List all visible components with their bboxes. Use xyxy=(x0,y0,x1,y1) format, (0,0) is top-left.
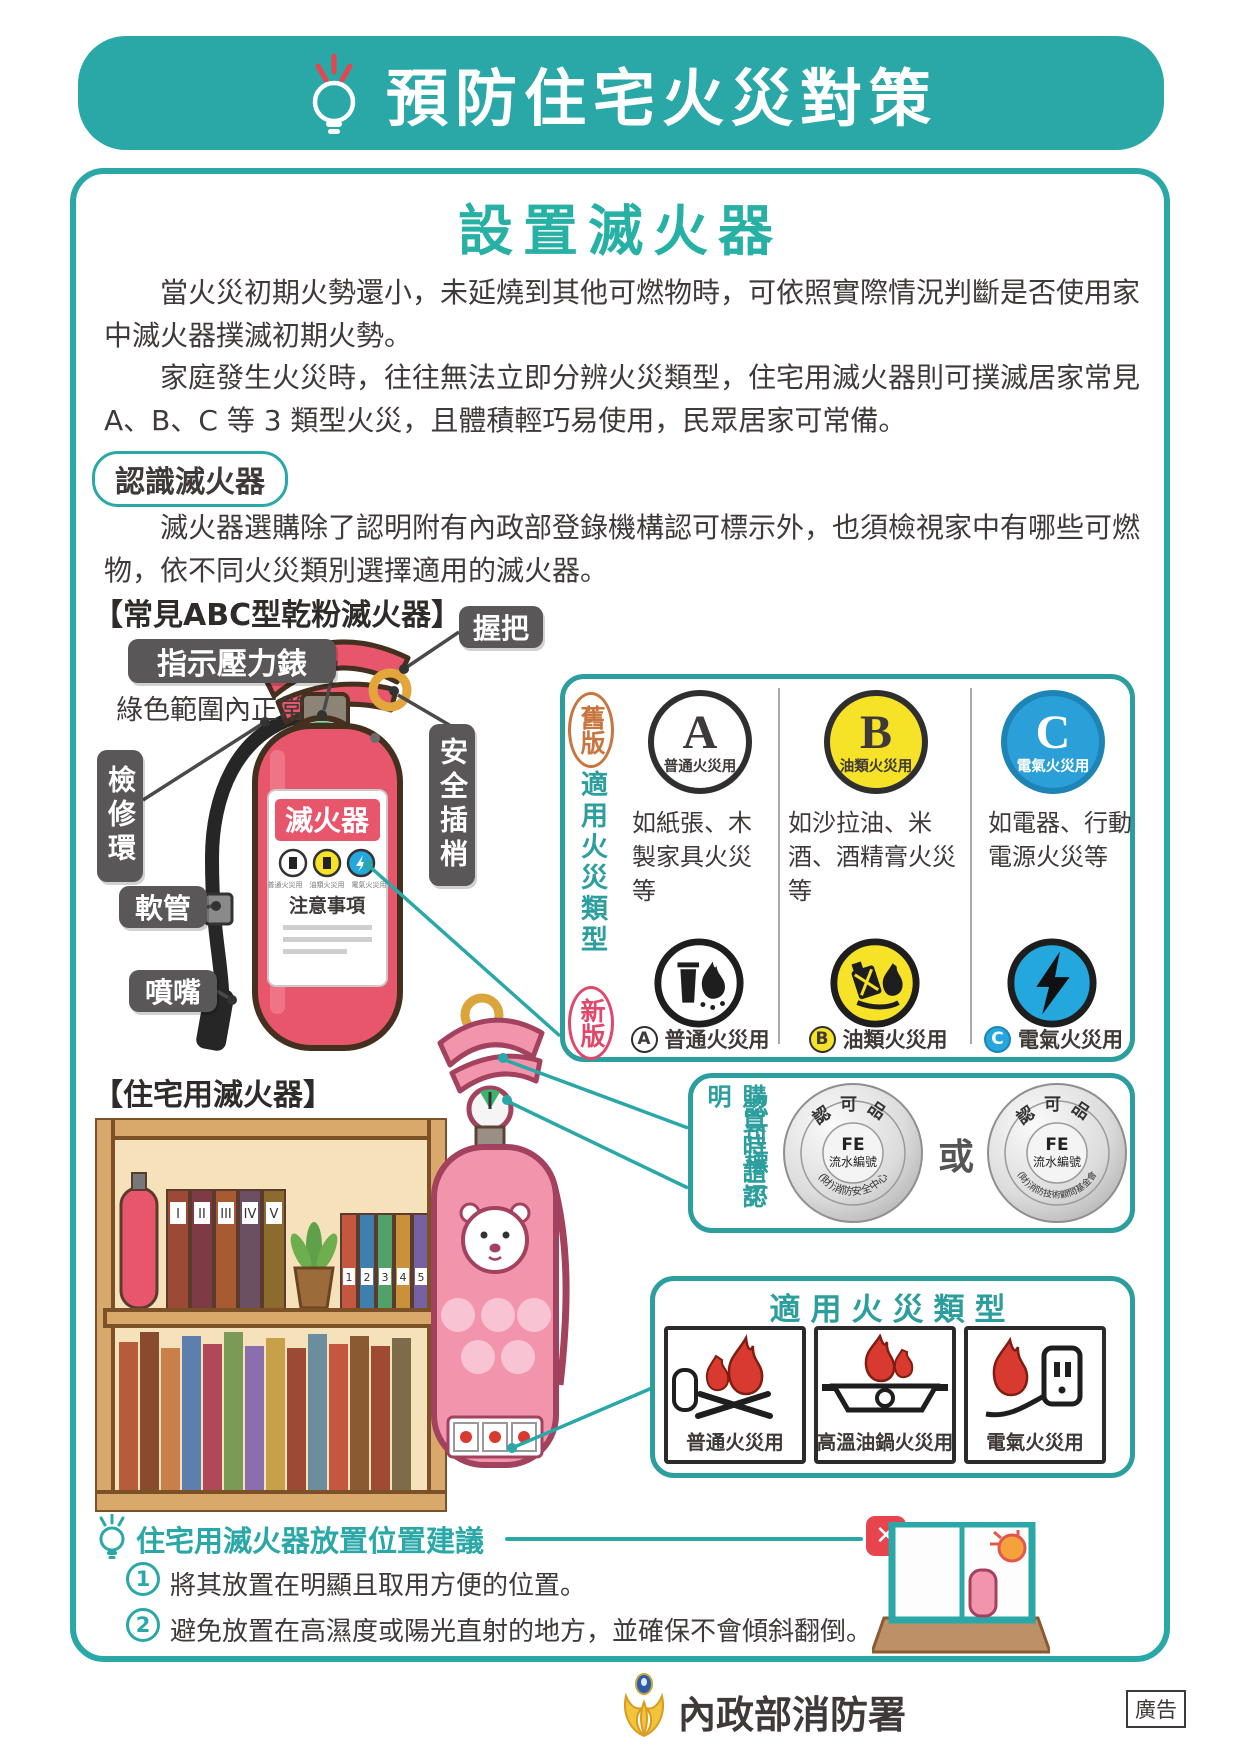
svg-text:1: 1 xyxy=(346,1271,353,1284)
svg-text:4: 4 xyxy=(400,1271,407,1284)
class-b-label: 油類火災用 xyxy=(840,760,913,775)
gauge-note: 綠色範圍內正常 xyxy=(116,688,305,727)
svg-text:2: 2 xyxy=(364,1271,371,1284)
or-text: 或 xyxy=(938,1128,974,1180)
mini-class-caption: 普通火災用 油類火災用 電氣火災用 xyxy=(268,880,387,889)
svg-text:IV: IV xyxy=(244,1207,257,1222)
placement-item-1-number: 1 xyxy=(126,1562,160,1596)
class-a-caption-circle: A xyxy=(631,1026,658,1053)
applicable-box-electrical: 電氣火災用 xyxy=(964,1326,1106,1464)
applicable-caption-ordinary: 普通火災用 xyxy=(686,1426,784,1455)
banner: 預防住宅火災對策 xyxy=(78,36,1164,150)
label-pressure-gauge: 指示壓力錶 xyxy=(128,639,336,683)
class-c-desc: 如電器、行動電源火災等 xyxy=(988,806,1133,874)
class-c-new-icon xyxy=(1005,936,1099,1030)
outlet-fire-icon xyxy=(968,1334,1102,1426)
label-hose: 軟管 xyxy=(119,886,207,928)
class-a-label: 普通火災用 xyxy=(664,760,737,775)
svg-text:II: II xyxy=(198,1207,206,1222)
home-extinguisher-illustration xyxy=(420,985,575,1520)
intro-paragraph-3: 滅火器選購除了認明附有內政部登錄機構認可標示外，也須檢視家中有哪些可燃物，依不同… xyxy=(104,507,1144,592)
placement-title: 住宅用滅火器放置位置建議 xyxy=(136,1518,484,1560)
applicable-type-side-label: 適用火災類型 xyxy=(572,770,611,975)
campfire-icon xyxy=(668,1334,802,1426)
svg-text:V: V xyxy=(270,1207,279,1222)
seal1-code-label: 流水編號 xyxy=(829,1154,877,1169)
ad-label: 廣告 xyxy=(1126,1690,1186,1728)
seal2-code-label: 流水編號 xyxy=(1033,1154,1081,1169)
intro-paragraph-2: 家庭發生火災時，往往無法立即分辨火災類型，住宅用滅火器則可撲滅居家常見 A、B、… xyxy=(104,357,1144,442)
know-extinguisher-badge: 認識滅火器 xyxy=(92,451,288,507)
class-a-caption: A 普通火災用 xyxy=(620,1024,780,1054)
label-safety-pin: 安全插梢 xyxy=(429,724,475,886)
class-a-desc: 如紙張、木製家具火災等 xyxy=(632,806,774,908)
home-extinguisher-title: 【住宅用滅火器】 xyxy=(93,1070,333,1114)
poster: 預防住宅火災對策 設置滅火器 當火災初期火勢還小，未延燒到其他可燃物時，可依照實… xyxy=(0,0,1241,1754)
placement-item-2-number: 2 xyxy=(126,1608,160,1642)
bear-face xyxy=(463,1208,527,1272)
class-b-caption-circle: B xyxy=(809,1026,836,1053)
applicable-box-ordinary: 普通火災用 xyxy=(664,1326,806,1464)
placement-item-1-text: 將其放置在明顯且取用方便的位置。 xyxy=(170,1565,586,1602)
poster-title: 預防住宅火災對策 xyxy=(386,48,938,138)
class-c-caption-text: 電氣火災用 xyxy=(1018,1024,1123,1054)
class-b-desc: 如沙拉油、米酒、酒精膏火災等 xyxy=(788,806,966,908)
window-sunlight-illustration xyxy=(872,1522,1050,1654)
svg-text:3: 3 xyxy=(382,1271,389,1284)
class-c-caption: C 電氣火災用 xyxy=(972,1024,1135,1054)
column-divider-1 xyxy=(778,688,780,1044)
class-c-caption-circle: C xyxy=(984,1026,1011,1053)
lightbulb-icon xyxy=(304,50,364,136)
label-nozzle: 噴嘴 xyxy=(129,970,217,1012)
agency-name: 內政部消防署 xyxy=(678,1684,906,1739)
approval-seal-2: 認可品 (財)消防技術顧問基金會 FE 流水編號 xyxy=(984,1080,1130,1226)
books-numbered: 1 2 3 4 5 xyxy=(341,1214,429,1310)
placement-item-2-text: 避免放置在高濕度或陽光直射的地方，並確保不會傾斜翻倒。 xyxy=(170,1611,872,1648)
seal1-code: FE xyxy=(841,1135,864,1155)
class-a-caption-text: 普通火災用 xyxy=(665,1024,770,1054)
approval-mark-label: 認可標示 xyxy=(737,1094,772,1214)
column-divider-2 xyxy=(970,688,972,1044)
label-service-ring: 檢修環 xyxy=(97,750,143,882)
class-c-letter: C xyxy=(1036,709,1071,757)
applicable-caption-oil-pan: 高溫油鍋火災用 xyxy=(817,1426,954,1455)
class-a-new-icon xyxy=(652,936,746,1030)
intro-paragraph-1: 當火災初期火勢還小，未延燒到其他可燃物時，可依照實際情況判斷是否使用家中滅火器撲… xyxy=(104,272,1144,357)
svg-text:I: I xyxy=(176,1207,180,1222)
old-version-stamp: 舊版 xyxy=(568,692,614,768)
class-b-letter: B xyxy=(860,709,892,757)
class-b-new-icon xyxy=(828,936,922,1030)
tank-label-text: 滅火器 xyxy=(285,804,370,837)
oil-pan-fire-icon xyxy=(818,1334,952,1426)
new-version-stamp: 新版 xyxy=(568,986,614,1060)
applicable-types-title: 適用火災類型 xyxy=(650,1284,1135,1329)
approval-seal-1: 認可品 (財)消防安全中心 FE 流水編號 xyxy=(780,1080,926,1226)
label-handle: 握把 xyxy=(459,606,543,648)
class-b-caption: B 油類火災用 xyxy=(794,1024,962,1054)
class-a-letter: A xyxy=(683,709,718,757)
fire-agency-logo xyxy=(620,1672,668,1738)
class-c-badge: C 電氣火災用 xyxy=(1001,690,1105,794)
class-b-caption-text: 油類火災用 xyxy=(843,1024,948,1054)
bookshelf-illustration: I II III IV V 1 2 3 4 5 xyxy=(95,1118,447,1512)
applicable-caption-electrical: 電氣火災用 xyxy=(986,1426,1084,1455)
class-c-label: 電氣火災用 xyxy=(1017,760,1090,775)
section-heading: 設置滅火器 xyxy=(0,186,1241,266)
class-a-badge: A 普通火災用 xyxy=(648,690,752,794)
seal2-code: FE xyxy=(1045,1135,1068,1155)
books-roman: I II III IV V xyxy=(167,1190,285,1310)
placement-bulb-icon xyxy=(96,1514,128,1560)
caution-text: 注意事項 xyxy=(289,894,366,917)
applicable-box-oil-pan: 高溫油鍋火災用 xyxy=(814,1326,956,1464)
svg-text:III: III xyxy=(220,1207,232,1222)
class-b-badge: B 油類火災用 xyxy=(824,690,928,794)
placement-title-rule xyxy=(505,1537,863,1541)
